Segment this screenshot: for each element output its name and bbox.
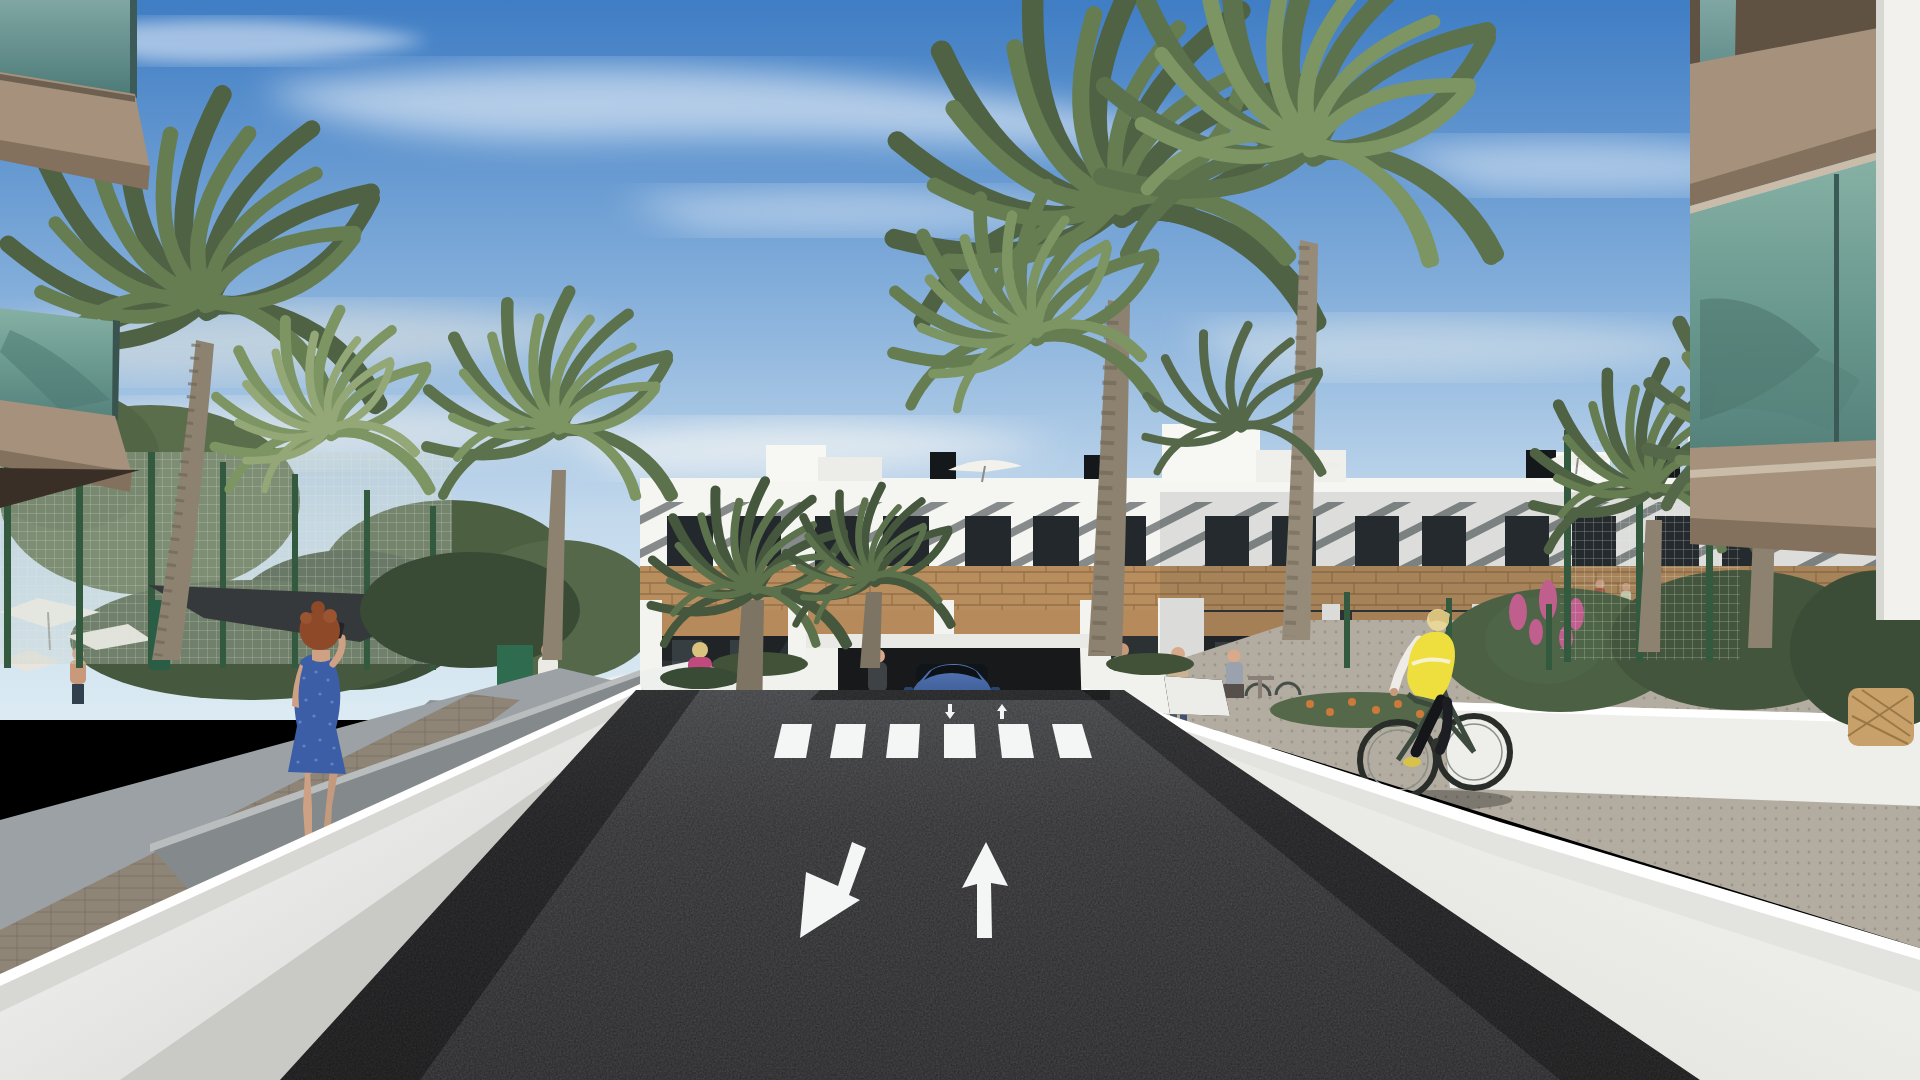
foreground-right-building [1690,0,1920,620]
wicker-chair [1848,688,1914,746]
render-canvas [0,0,1920,1080]
left-balcony-lower [0,308,132,492]
left-balcony-upper [0,0,150,190]
